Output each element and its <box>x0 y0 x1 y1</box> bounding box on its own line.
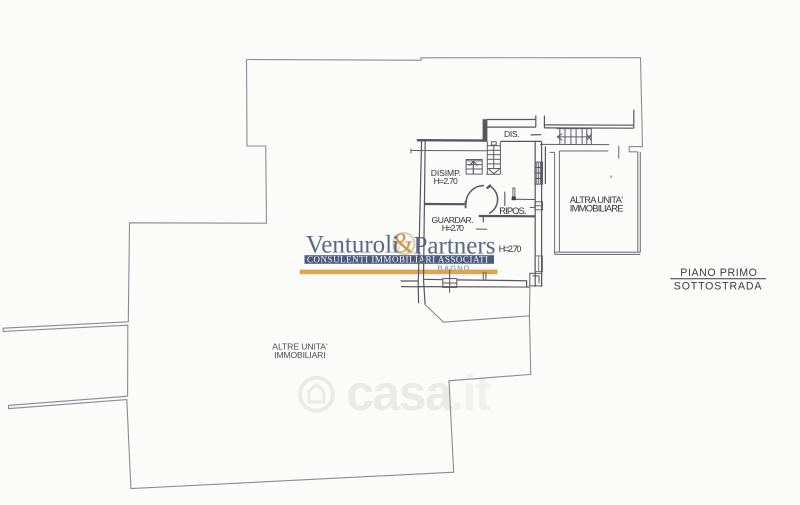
svg-text:PIANO PRIMO: PIANO PRIMO <box>680 267 757 279</box>
svg-text:casa: casa <box>346 365 454 421</box>
svg-text:H=2.70: H=2.70 <box>499 244 522 254</box>
svg-text:DIS.: DIS. <box>504 129 520 139</box>
svg-text:H=2.70: H=2.70 <box>434 176 459 186</box>
svg-text:IMMOBILIARI: IMMOBILIARI <box>274 350 326 360</box>
svg-text:H=2.70: H=2.70 <box>442 223 465 233</box>
svg-text:SOTTOSTRADA: SOTTOSTRADA <box>674 280 763 292</box>
svg-text:IMMOBILIARE: IMMOBILIARE <box>570 202 624 213</box>
svg-text:.it: .it <box>450 365 492 421</box>
svg-text:RIPOS.: RIPOS. <box>499 205 527 216</box>
